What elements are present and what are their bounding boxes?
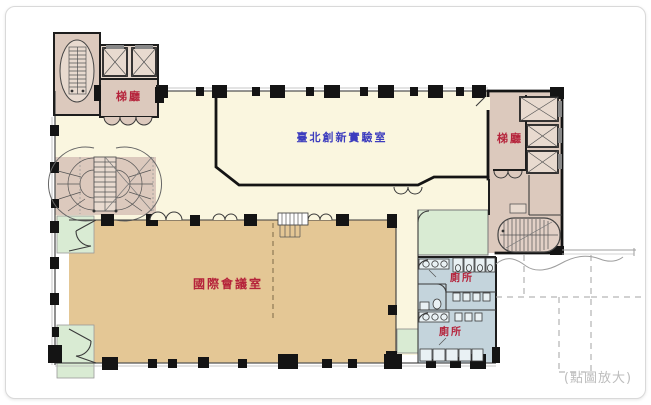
image-card: 梯廳 臺北創新實驗室 梯廳 國際會議室 廁所 廁所 (點圖放大) — [5, 6, 646, 399]
floor-plan-image[interactable]: 梯廳 臺北創新實驗室 梯廳 國際會議室 廁所 廁所 (點圖放大) — [6, 7, 645, 398]
room-label-conference-room: 國際會議室 — [193, 276, 263, 291]
room-label-stair-hall-left: 梯廳 — [116, 89, 142, 103]
canopy-dashed-outline — [496, 248, 646, 372]
room-label-toilet-lower: 廁所 — [439, 325, 463, 338]
room-label-stair-hall-right: 梯廳 — [497, 131, 523, 145]
room-label-innovation-lab: 臺北創新實驗室 — [297, 130, 388, 144]
enlarge-hint-text: (點圖放大) — [564, 371, 632, 386]
page: 梯廳 臺北創新實驗室 梯廳 國際會議室 廁所 廁所 (點圖放大) — [0, 0, 651, 405]
room-label-toilet-upper: 廁所 — [450, 271, 474, 284]
floor-plan-svg: 梯廳 臺北創新實驗室 梯廳 國際會議室 廁所 廁所 (點圖放大) — [6, 7, 651, 405]
